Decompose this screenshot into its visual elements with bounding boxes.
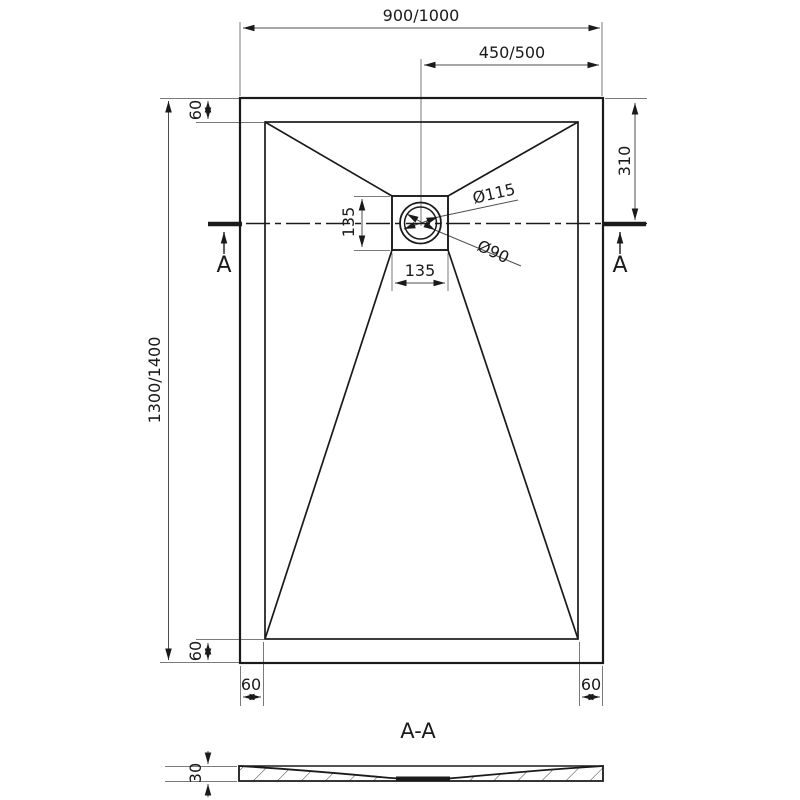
section-marker-a-left: A	[209, 254, 239, 278]
dim-rim-bottom-right-label: 60	[571, 675, 611, 695]
section-view	[239, 766, 603, 781]
section-view-title: A-A	[378, 719, 458, 743]
shower-tray-drawing	[0, 0, 800, 800]
section-marker-a-right: A	[605, 254, 635, 278]
dim-thickness-label: 30	[186, 753, 206, 793]
dim-length-overall-label: 1300/1400	[145, 325, 165, 435]
dim-rim-bottom-left-label: 60	[231, 675, 271, 695]
dim-rim-top-label: 60	[186, 90, 206, 130]
technical-drawing-canvas: 900/1000 450/500 1300/1400 310 60 60 60 …	[0, 0, 800, 800]
dim-drain-square-width-label: 135	[395, 261, 445, 281]
dim-rim-bottom-label: 60	[186, 631, 206, 671]
dim-drain-square-height-label: 135	[339, 197, 359, 247]
extension-lines	[160, 22, 647, 782]
dim-width-to-drain-label: 450/500	[467, 43, 557, 63]
dim-drain-from-top-label: 310	[615, 131, 635, 191]
dim-width-overall-label: 900/1000	[371, 6, 471, 26]
